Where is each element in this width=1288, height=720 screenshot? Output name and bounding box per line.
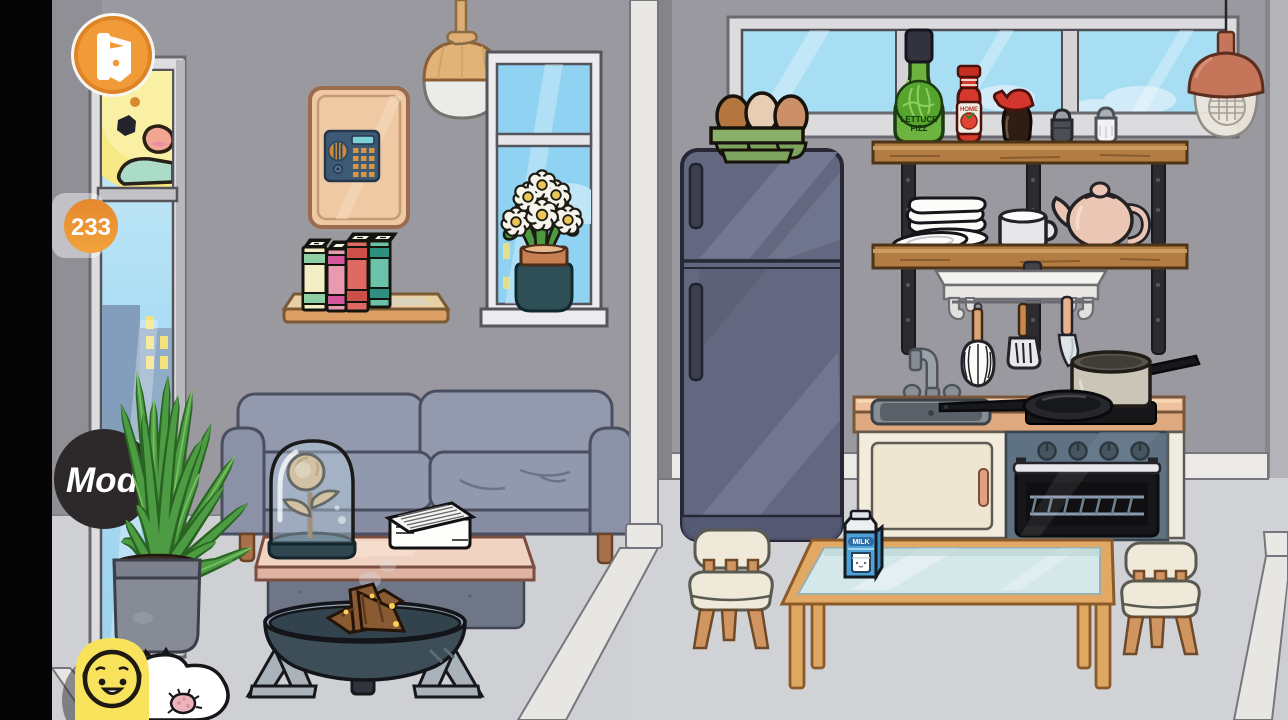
svg-text:HOME: HOME: [960, 107, 978, 113]
svg-text:LETTUCE: LETTUCE: [901, 115, 939, 124]
svg-text:233: 233: [71, 214, 111, 241]
svg-text:FIZZ: FIZZ: [911, 124, 928, 133]
svg-text:MILK: MILK: [852, 539, 869, 546]
svg-text:Mod: Mod: [66, 461, 139, 500]
